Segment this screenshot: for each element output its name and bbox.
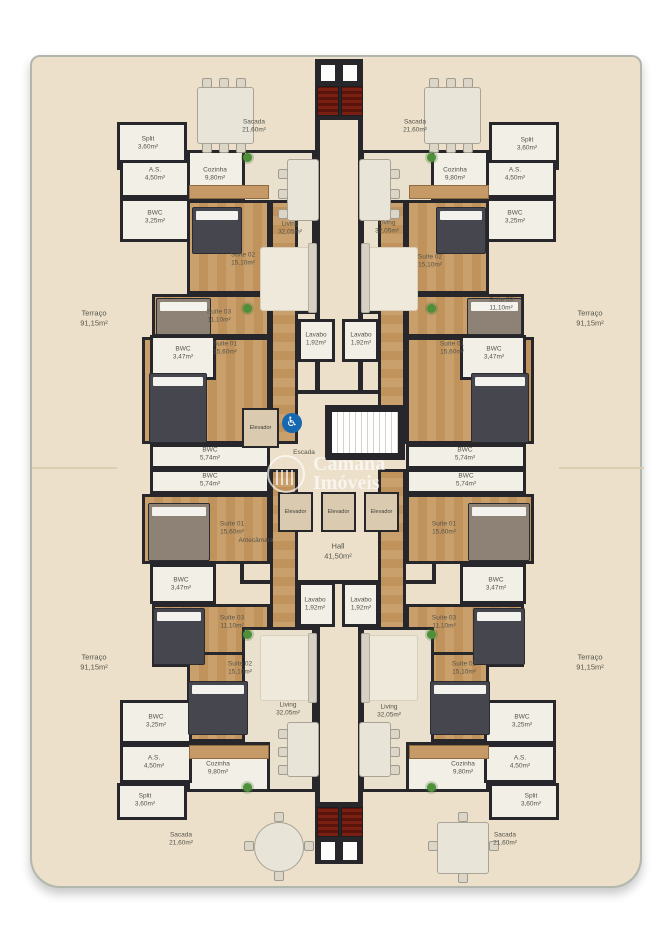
label-sacada-br: Sacada21,60m² bbox=[493, 832, 517, 849]
plant bbox=[243, 630, 252, 639]
living-dining-table bbox=[287, 159, 319, 221]
sacada-dining-table bbox=[197, 87, 254, 144]
label-terrace-bl: Terraço91,15m² bbox=[80, 652, 108, 672]
label-antecamara: Antecâmara bbox=[238, 537, 273, 545]
bed-suite02-tl bbox=[192, 207, 242, 254]
label-bwc-tl: BWC5,74m² bbox=[200, 447, 220, 464]
label-bwc-social-tl: BWC3,25m² bbox=[145, 210, 165, 227]
bed-suite01-tr bbox=[471, 373, 529, 443]
label-suite03-tr: Suíte 0311,10m² bbox=[489, 297, 513, 314]
chair bbox=[274, 812, 284, 822]
label-cozinha-br: Cozinha9,80m² bbox=[451, 761, 475, 778]
churrasqueira-grill bbox=[341, 807, 363, 837]
label-cozinha-tl: Cozinha9,80m² bbox=[203, 167, 227, 184]
elevator-cab: Elevador bbox=[364, 492, 399, 532]
plant bbox=[243, 783, 252, 792]
label-suite01-tr: Suíte 0115,60m² bbox=[440, 341, 464, 358]
sacada-round-table bbox=[254, 822, 304, 872]
churrasqueira-grill bbox=[317, 807, 339, 837]
chair bbox=[236, 143, 246, 153]
label-servico-br: A.S.4,50m² bbox=[510, 755, 530, 772]
watermark-text: Camana Imóveis bbox=[313, 455, 385, 493]
kitchen-counter bbox=[409, 185, 489, 199]
churrasqueira-grill bbox=[341, 86, 363, 116]
label-terrace-tl: Terraço91,15m² bbox=[80, 308, 108, 328]
sacada-dining-table bbox=[424, 87, 481, 144]
label-suite01-bl: Suíte 0115,60m² bbox=[220, 521, 244, 538]
label-lavabo-br: Lavabo1,92m² bbox=[350, 597, 371, 614]
label-living-tr: Living32,05m² bbox=[375, 220, 399, 237]
sacada-dining-table bbox=[437, 822, 489, 874]
label-suite01-br: Suíte 0115,60m² bbox=[432, 521, 456, 538]
living-dining-table bbox=[287, 722, 319, 777]
chair bbox=[390, 765, 400, 775]
living-dining-table bbox=[359, 722, 391, 777]
plant bbox=[427, 783, 436, 792]
bbq-window bbox=[341, 63, 359, 83]
label-lavabo-bl: Lavabo1,92m² bbox=[304, 597, 325, 614]
bbq-window bbox=[341, 840, 359, 862]
label-bwc-social-br: BWC3,25m² bbox=[512, 714, 532, 731]
label-living-br: Living32,05m² bbox=[377, 704, 401, 721]
elevator-label: Elevador bbox=[285, 509, 307, 515]
label-split-tr: Split3,60m² bbox=[517, 137, 537, 154]
chair bbox=[304, 841, 314, 851]
chair bbox=[429, 143, 439, 153]
bed-suite01-bl bbox=[148, 503, 210, 561]
chair bbox=[219, 143, 229, 153]
kitchen-counter bbox=[189, 745, 269, 759]
plant bbox=[427, 153, 436, 162]
bed-suite02-br bbox=[430, 681, 490, 735]
chair bbox=[458, 812, 468, 822]
elevator-label: Elevador bbox=[250, 425, 272, 431]
label-sacada-bl: Sacada21,60m² bbox=[169, 832, 193, 849]
terrace-divider-left bbox=[32, 467, 117, 469]
elevator-cab: Elevador bbox=[321, 492, 356, 532]
label-bwc-br: BWC5,74m² bbox=[456, 473, 476, 490]
label-bwc-social-tr: BWC3,25m² bbox=[505, 210, 525, 227]
label-suite02-br: Suíte 0215,10m² bbox=[452, 661, 476, 678]
chair bbox=[202, 143, 212, 153]
staircase bbox=[325, 405, 405, 460]
label-servico-tr: A.S.4,50m² bbox=[505, 167, 525, 184]
label-terrace-tr: Terraço91,15m² bbox=[576, 308, 604, 328]
elevator-cab: Elevador bbox=[242, 408, 279, 448]
kitchen-counter bbox=[409, 745, 489, 759]
label-suite03-tl: Suíte 0311,10m² bbox=[207, 309, 231, 326]
elevator-label: Elevador bbox=[328, 509, 350, 515]
plant bbox=[427, 304, 436, 313]
plant bbox=[243, 153, 252, 162]
sofa bbox=[308, 633, 317, 703]
bed-suite02-bl bbox=[188, 681, 248, 735]
sofa bbox=[361, 633, 370, 703]
label-suite02-bl: Suíte 0215,10m² bbox=[228, 661, 252, 678]
churrasqueira-grill bbox=[317, 86, 339, 116]
bed-suite01-tl bbox=[149, 373, 207, 443]
bed-suite03-tl bbox=[156, 298, 211, 335]
elevator-label: Elevador bbox=[371, 509, 393, 515]
label-split-tl: Split3,60m² bbox=[138, 136, 158, 153]
label-bwc-suite-br: BWC3,47m² bbox=[486, 577, 506, 594]
wheelchair-icon: ♿ bbox=[282, 413, 302, 433]
label-bwc-bl: BWC5,74m² bbox=[200, 473, 220, 490]
living-rug bbox=[362, 635, 418, 701]
chair bbox=[244, 841, 254, 851]
chair bbox=[390, 209, 400, 219]
label-hall: Hall41,50m² bbox=[324, 541, 352, 561]
plant bbox=[243, 304, 252, 313]
label-lavabo-tl: Lavabo1,92m² bbox=[305, 332, 326, 349]
stair-treads bbox=[332, 412, 398, 453]
camana-imoveis-watermark: Camana Imóveis bbox=[267, 455, 385, 493]
chair bbox=[390, 189, 400, 199]
elevator-cab: Elevador bbox=[278, 492, 313, 532]
label-split-bl: Split3,60m² bbox=[135, 793, 155, 810]
bbq-window bbox=[319, 840, 337, 862]
label-bwc-suite-tr: BWC3,47m² bbox=[484, 346, 504, 363]
label-sacada-tl: Sacada21,60m² bbox=[242, 119, 266, 136]
chair bbox=[274, 871, 284, 881]
label-bwc-social-bl: BWC3,25m² bbox=[146, 714, 166, 731]
label-cozinha-tr: Cozinha9,80m² bbox=[443, 167, 467, 184]
label-split-br: Split3,60m² bbox=[521, 793, 541, 810]
label-terrace-br: Terraço91,15m² bbox=[576, 652, 604, 672]
label-bwc-suite-bl: BWC3,47m² bbox=[171, 577, 191, 594]
chair bbox=[446, 143, 456, 153]
chair bbox=[390, 729, 400, 739]
living-rug bbox=[362, 247, 418, 311]
bed-suite01-br bbox=[468, 503, 530, 561]
kitchen-counter bbox=[189, 185, 269, 199]
chair bbox=[463, 143, 473, 153]
label-suite03-br: Suíte 0311,10m² bbox=[432, 615, 456, 632]
bed-suite03-bl bbox=[153, 608, 205, 665]
label-servico-tl: A.S.4,50m² bbox=[145, 167, 165, 184]
sofa bbox=[361, 243, 370, 313]
label-sacada-tr: Sacada21,60m² bbox=[403, 119, 427, 136]
terrace-divider-right bbox=[559, 467, 644, 469]
label-lavabo-tr: Lavabo1,92m² bbox=[350, 332, 371, 349]
bbq-window bbox=[319, 63, 337, 83]
floorplan-canvas: Elevador ♿ Elevador Elevador Elevador bbox=[30, 55, 642, 888]
label-living-tl: Living32,05m² bbox=[278, 221, 302, 238]
label-cozinha-bl: Cozinha9,80m² bbox=[206, 761, 230, 778]
sofa bbox=[308, 243, 317, 313]
camana-imoveis-logo-icon bbox=[267, 455, 305, 493]
chair bbox=[390, 169, 400, 179]
label-servico-bl: A.S.4,50m² bbox=[144, 755, 164, 772]
label-suite02-tl: Suíte 0215,10m² bbox=[231, 252, 255, 269]
chair bbox=[458, 873, 468, 883]
label-suite01-tl: Suíte 0115,60m² bbox=[213, 341, 237, 358]
floorplan-page: { "watermark": {"line1": "Camana", "line… bbox=[0, 0, 672, 950]
living-dining-table bbox=[359, 159, 391, 221]
label-suite03-bl: Suíte 0311,10m² bbox=[220, 615, 244, 632]
label-suite02-tr: Suíte 0215,10m² bbox=[418, 254, 442, 271]
bed-suite03-br bbox=[473, 608, 525, 665]
bed-suite02-tr bbox=[436, 207, 486, 254]
label-bwc-suite-tl: BWC3,47m² bbox=[173, 346, 193, 363]
label-bwc-tr: BWC5,74m² bbox=[455, 447, 475, 464]
label-living-bl: Living32,05m² bbox=[276, 702, 300, 719]
chair bbox=[390, 747, 400, 757]
